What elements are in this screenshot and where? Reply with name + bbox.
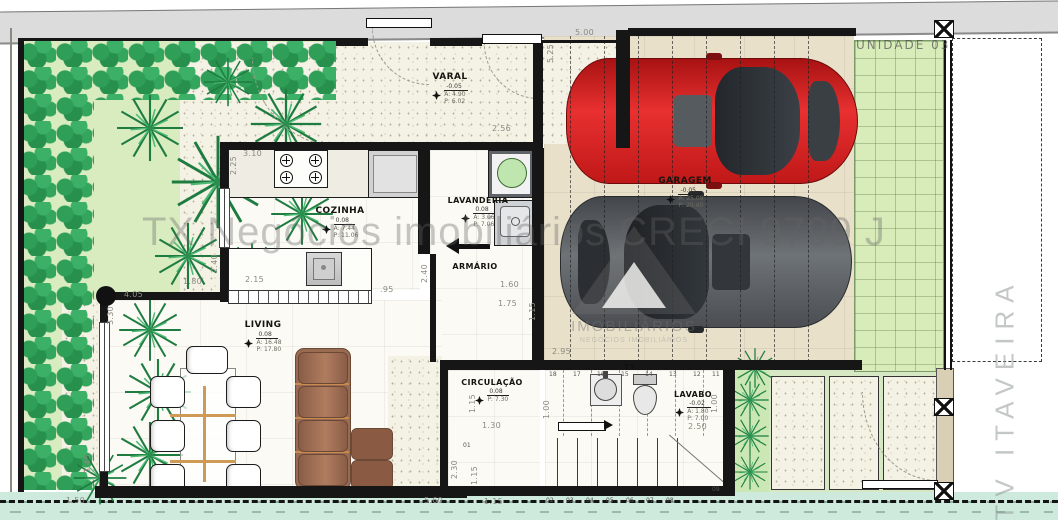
wall [543, 40, 618, 43]
table-runner [170, 414, 236, 417]
dimension-label: 1.30 [482, 421, 501, 430]
dimension-label: 5.00 [575, 28, 594, 37]
tread-number: 11 [712, 371, 720, 378]
tread-number: 18 [549, 371, 557, 378]
room-label-varal: VARAL -0.05A: 4.90P: 6.02 [408, 72, 492, 105]
table-runner [170, 460, 236, 463]
dimension-label: 5.25 [546, 44, 555, 63]
wall [220, 142, 228, 188]
column-x-icon [934, 482, 954, 500]
island-sink-icon [306, 252, 342, 286]
wall [220, 142, 534, 150]
wall [442, 360, 862, 370]
dimension-label: 3.10 [243, 149, 262, 158]
dimension-label: 1.75 [498, 299, 517, 308]
dimension-label: 3.30 [106, 306, 115, 325]
column-x-icon [934, 398, 954, 416]
wall [430, 38, 482, 46]
agency-logo-caption: IMOBILIÁRIOS [564, 318, 704, 335]
tread-number: 03 [566, 497, 574, 504]
room-label-garagem: GARAGEM -0.05A: 25.08P: 20.40 [640, 176, 730, 209]
cooktop-icon [274, 150, 328, 188]
dimension-label: 1.15 [468, 394, 477, 413]
dimension-label: 1.15 [470, 466, 479, 485]
wall [532, 148, 544, 364]
tread-number: 04 [586, 497, 594, 504]
wall [723, 360, 735, 496]
dimension-label: 2.15 [245, 275, 264, 284]
dimension-label: 1.15 [528, 302, 537, 321]
stair-flight [537, 438, 727, 488]
wall [18, 38, 338, 41]
dimension-label: 2.40 [420, 264, 429, 283]
unit-label: UNIDADE 03 [856, 38, 950, 52]
agency-watermark: TX Negócios imobiliários CRECI 9799 J [142, 210, 886, 255]
dimension-label: 5.60 [424, 496, 443, 505]
register-symbol: TT [624, 363, 636, 371]
tread-number: 14 [645, 371, 653, 378]
tread-number: 16 [597, 371, 605, 378]
tread-number: 13 [669, 371, 677, 378]
chair-icon [150, 420, 185, 452]
room-label-armario: ARMÁRIO [438, 262, 512, 271]
driveway-planter [731, 362, 769, 492]
wall [18, 38, 24, 492]
agency-logo-subcaption: NEGÓCIOS IMOBILIÁRIOS [564, 337, 704, 344]
room-label-circulacao: CIRCULAÇÃO 0.08P: 7.30 [446, 378, 538, 409]
dimension-label: 2.25 [229, 156, 238, 175]
sofa-icon [295, 348, 393, 490]
dimension-label: 1.60 [500, 280, 519, 289]
room-label-living: LIVING 0.08A: 16.48P: 17.80 [218, 320, 308, 353]
window [99, 322, 110, 472]
dimension-label: 1.15 [484, 497, 503, 506]
agency-logo-inner-icon [602, 262, 666, 308]
street-label: TV ITAVEIRA [990, 301, 1021, 520]
toilet-icon [632, 374, 658, 416]
living-stipple-patch [388, 356, 442, 488]
washer-icon [488, 150, 534, 198]
door-leaf [482, 34, 542, 44]
wall [533, 40, 543, 148]
cabinet-drawers [228, 290, 372, 304]
tread-number: 09 [712, 486, 720, 493]
door-leaf [366, 18, 432, 28]
grass-paver-strip [854, 40, 944, 372]
tread-number: 07 [646, 497, 654, 504]
wall [336, 38, 368, 46]
tread-number: 17 [573, 371, 581, 378]
wall [616, 30, 630, 148]
driveway-slab [771, 376, 825, 490]
dimension-label: 2.40 [210, 254, 219, 273]
tread-number: 15 [621, 371, 629, 378]
level-marker-icon [666, 189, 675, 208]
dimension-label: 4.05 [124, 290, 143, 299]
tread-number: 01 [463, 442, 471, 449]
dimension-label: 2.56 [492, 124, 511, 133]
gate-rail-line [944, 40, 946, 370]
wall [628, 28, 856, 36]
wall [440, 486, 735, 496]
level-marker-icon [244, 333, 253, 352]
dimension-label: 2.30 [450, 460, 459, 479]
level-marker-icon [432, 85, 441, 104]
floor-plan-canvas: TT VARAL -0.05A: 4.90P: 6.02 COZINHA 0.0… [0, 0, 1058, 520]
gate-post-strip [936, 368, 954, 496]
dimension-label: 2.50 [688, 422, 707, 431]
fridge-icon [368, 150, 422, 198]
plot-edge-line [10, 28, 12, 492]
chair-icon [150, 376, 185, 408]
hedge-left [20, 40, 94, 490]
tread-number: 06 [626, 497, 634, 504]
chair-icon [226, 376, 261, 408]
chair-icon [226, 420, 261, 452]
dimension-label: 1.00 [710, 394, 719, 413]
tread-number: 08 [666, 497, 674, 504]
property-dashed-line [0, 500, 1058, 503]
tread-number: 05 [606, 497, 614, 504]
lavabo-sink-icon [590, 374, 622, 406]
wall [430, 254, 436, 362]
structural-column-dot [96, 286, 116, 306]
dimension-label: 1.00 [542, 400, 551, 419]
tread-number: 02 [546, 497, 554, 504]
level-marker-icon [675, 402, 684, 421]
dimension-label: 1.80 [183, 277, 202, 286]
dimension-label: .95 [380, 285, 394, 294]
dimension-label: 1.50 [66, 496, 85, 505]
wall [95, 486, 467, 498]
column-x-icon [934, 20, 954, 38]
dimension-label: 2.95 [552, 347, 571, 356]
stair-direction-arrow-icon [604, 420, 613, 430]
tread-number: 12 [693, 371, 701, 378]
stair-handrail [558, 422, 606, 431]
pedestrian-gate-leaf [862, 480, 938, 489]
dimension-label: 3.45 [83, 454, 92, 473]
gate-rail-line [950, 40, 952, 370]
table-runner [203, 386, 206, 482]
